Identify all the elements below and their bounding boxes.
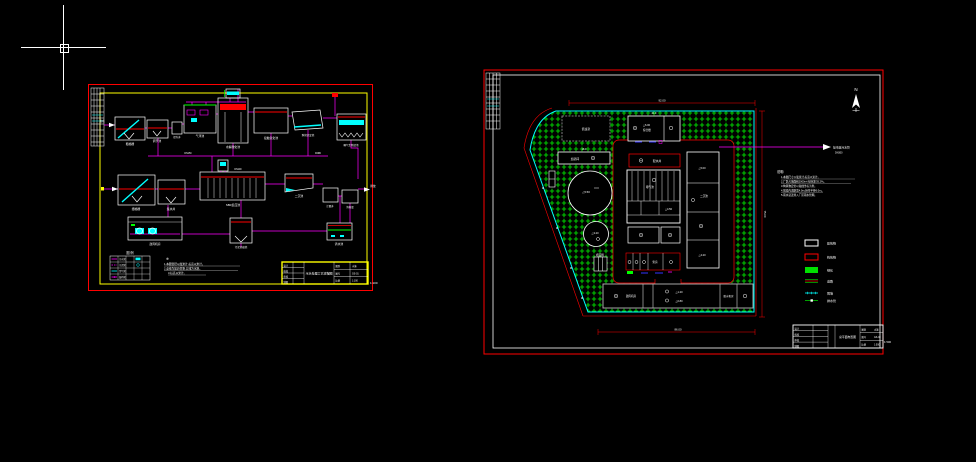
- svg-text:提升井: 提升井: [173, 135, 181, 139]
- left-legend-table: 图 例 污水管 污泥管 空气管 加药管: [110, 250, 150, 280]
- svg-text:86.00: 86.00: [675, 328, 682, 332]
- sludge-thickener: [230, 218, 252, 243]
- tank-fine-screen: [118, 175, 155, 205]
- clarifier-circle-small: △3.20: [584, 222, 609, 247]
- legend-swatch-drain: [805, 299, 818, 301]
- left-revision-strip: [91, 88, 104, 146]
- tank-aerated-filter: [337, 114, 366, 140]
- legend-swatch-wall: [805, 292, 818, 294]
- svg-text:空气管: 空气管: [119, 269, 126, 273]
- svg-text:脱水机房: 脱水机房: [723, 294, 734, 298]
- svg-text:泵房: 泵房: [652, 260, 658, 264]
- svg-text:水施: 水施: [352, 264, 357, 268]
- bottom-structures: [128, 217, 352, 243]
- svg-text:1.本图管径以毫米计,标高以米计。: 1.本图管径以毫米计,标高以米计。: [164, 262, 205, 266]
- svg-text:排水管: 排水管: [827, 298, 836, 303]
- notes-title: 说明:: [777, 169, 784, 174]
- svg-text:水施: 水施: [874, 327, 879, 331]
- svg-text:比例: 比例: [336, 279, 341, 283]
- svg-text:污泥浓缩池: 污泥浓缩池: [235, 245, 248, 249]
- svg-text:92.00: 92.00: [659, 99, 666, 103]
- svg-text:DN80: DN80: [315, 153, 322, 155]
- svg-text:△4.50: △4.50: [665, 207, 673, 211]
- svg-text:粗格栅: 粗格栅: [126, 142, 135, 146]
- left-notes: ※ 1.本图管径以毫米计,标高以米计。 2.虚线为加药管路,实线为水路。 3.标…: [164, 257, 240, 275]
- svg-text:细格栅: 细格栅: [132, 207, 141, 211]
- svg-text:围墙: 围墙: [827, 291, 833, 296]
- svg-text:GS-01: GS-01: [352, 273, 359, 275]
- svg-text:4.围墙内道路宽4.0m,转弯半径6.0m。: 4.围墙内道路宽4.0m,转弯半径6.0m。: [781, 189, 824, 193]
- svg-text:加药管: 加药管: [119, 275, 126, 279]
- svg-text:75.00: 75.00: [763, 211, 767, 218]
- svg-text:图号: 图号: [862, 335, 867, 339]
- svg-text:鼓风机房: 鼓风机房: [626, 294, 637, 298]
- inflow-marker: [101, 187, 104, 191]
- tank-coarse-screen: [115, 117, 145, 140]
- svg-text:制图: 制图: [795, 344, 800, 348]
- north-arrow: N: [852, 87, 860, 112]
- svg-text:曝气池: 曝气池: [646, 185, 654, 189]
- svg-text:综合楼: 综合楼: [643, 128, 651, 132]
- clarifier-circle-large: △5.50: [568, 171, 612, 215]
- svg-text:消毒渠: 消毒渠: [346, 205, 354, 209]
- svg-text:1:100: 1:100: [352, 281, 358, 283]
- svg-text:道路: 道路: [827, 279, 833, 284]
- svg-text:△5.00: △5.00: [698, 166, 706, 170]
- svg-text:△3.20: △3.20: [591, 231, 599, 235]
- svg-text:制图: 制图: [284, 280, 289, 284]
- aeration-tank-block: 曝气池 △4.50: [627, 170, 680, 223]
- note-symbol: ※: [166, 257, 169, 261]
- legend-swatch-building: [805, 240, 818, 246]
- right-notes: 说明: 1.本图尺寸以毫米计,标高以米计。 2.厂区占地面积2000m²,绿化率…: [777, 169, 855, 197]
- left-title-block: 设计 校核 审核 制图 污水处理工艺流程图 图别 水施 图号 GS-01 比例 …: [282, 262, 378, 285]
- svg-text:曝气生物滤池: 曝气生物滤池: [343, 143, 359, 147]
- svg-text:DN300: DN300: [835, 152, 843, 155]
- left-drawing-title: 污水处理工艺流程图: [305, 271, 332, 276]
- lower-cells: [628, 227, 680, 243]
- tank-equalization: [147, 120, 168, 138]
- svg-text:斜管沉淀池: 斜管沉淀池: [302, 133, 315, 137]
- tanks-row-2: [101, 160, 358, 205]
- tank-secondary-clarifier: [285, 174, 313, 192]
- svg-text:DN150: DN150: [184, 153, 192, 155]
- flow-in-label: 进水: [99, 119, 105, 123]
- svg-text:比例: 比例: [862, 343, 867, 347]
- dosing-stack-cap: [332, 93, 338, 97]
- left-edge-text: 1:100: [370, 281, 378, 285]
- right-legend: 建筑物 构筑物 绿化 道路 围墙 排水管: [805, 240, 836, 303]
- svg-text:二沉池: 二沉池: [700, 194, 708, 198]
- tank-disinfection: [342, 190, 358, 203]
- svg-text:污水管: 污水管: [119, 257, 126, 261]
- pipe-network: [104, 89, 364, 247]
- tank-lamella-clarifier: [292, 110, 323, 130]
- flow-arrows: [109, 123, 370, 192]
- dosing-building: 加药间: [558, 152, 610, 164]
- right-tank-column: △5.00 二沉池 △4.20: [687, 152, 719, 268]
- svg-text:2.厂区占地面积2000m²,绿化率35.2%。: 2.厂区占地面积2000m²,绿化率35.2%。: [781, 180, 826, 184]
- flow-out-label: 排放: [370, 184, 376, 188]
- svg-text:GS-02: GS-02: [874, 337, 881, 339]
- svg-text:校核: 校核: [284, 269, 289, 273]
- tank-collection-well: [158, 180, 185, 204]
- left-legend-title: 图 例: [126, 250, 133, 255]
- svg-text:计量井: 计量井: [326, 204, 334, 208]
- svg-text:21.0: 21.0: [652, 112, 657, 115]
- svg-text:构筑物: 构筑物: [827, 255, 836, 260]
- tank-hydrolysis: [218, 89, 248, 143]
- svg-text:DN100: DN100: [234, 169, 242, 171]
- svg-text:△5.50: △5.50: [582, 190, 590, 194]
- svg-text:1.本图尺寸以毫米计,标高以米计。: 1.本图尺寸以毫米计,标高以米计。: [781, 175, 820, 179]
- tank-contact-oxidation: [254, 108, 288, 133]
- svg-text:值班室: 值班室: [582, 127, 591, 131]
- svg-text:△4.20: △4.20: [698, 253, 706, 257]
- svg-text:建筑物: 建筑物: [827, 241, 836, 246]
- svg-text:5.雨水就近排入厂区雨水管网。: 5.雨水就近排入厂区雨水管网。: [781, 193, 817, 197]
- tank-sbr: [200, 160, 265, 200]
- svg-text:△6.00: △6.00: [643, 123, 651, 127]
- svg-text:N: N: [854, 87, 857, 92]
- legend-swatch-road: [805, 280, 818, 283]
- svg-text:气浮池: 气浮池: [196, 134, 205, 138]
- tank-metering-well: [323, 188, 338, 202]
- svg-text:图别: 图别: [336, 264, 341, 268]
- svg-text:集水井: 集水井: [167, 207, 176, 211]
- svg-text:鼓风机房: 鼓风机房: [149, 242, 160, 246]
- svg-text:调节池: 调节池: [153, 139, 162, 143]
- svg-text:设计: 设计: [795, 327, 800, 331]
- tanks-row-1: [115, 89, 366, 143]
- svg-text:图别: 图别: [862, 327, 867, 331]
- svg-text:2.虚线为加药管路,实线为水路。: 2.虚线为加药管路,实线为水路。: [164, 267, 202, 271]
- right-edge-text: 1:500: [884, 340, 891, 344]
- svg-text:设计: 设计: [284, 263, 289, 267]
- svg-text:接触氧化池: 接触氧化池: [264, 136, 278, 140]
- bottom-buildings-row: 鼓风机房 △1.20 △0.80 脱水机房: [603, 284, 753, 308]
- svg-text:水解酸化池: 水解酸化池: [226, 145, 240, 149]
- svg-text:18.0: 18.0: [582, 148, 587, 151]
- svg-text:晒泥场: 晒泥场: [596, 253, 604, 257]
- svg-text:3.标高以米计。: 3.标高以米计。: [168, 271, 186, 275]
- svg-text:二沉池: 二沉池: [295, 194, 304, 198]
- svg-text:绿化: 绿化: [827, 268, 833, 273]
- clean-water-tank: [327, 223, 352, 240]
- svg-text:3.构筑物定位以轴线坐标为准。: 3.构筑物定位以轴线坐标为准。: [781, 184, 817, 188]
- outfall-arrow: [823, 144, 831, 150]
- svg-text:△0.80: △0.80: [675, 299, 683, 303]
- svg-text:清水池: 清水池: [335, 242, 344, 246]
- legend-swatch-structure: [805, 254, 818, 260]
- svg-text:校核: 校核: [795, 332, 800, 336]
- tank-lift-well: [172, 122, 182, 134]
- guard-house: 值班室: [562, 116, 610, 141]
- right-drawing-title: 总平面布置图: [839, 335, 856, 339]
- svg-text:配水井: 配水井: [653, 159, 662, 163]
- site-plan-drawing[interactable]: N 92.00 86.00 75.00 21.0 18.0 13.0 30.0 …: [483, 68, 885, 358]
- blower-house: [128, 217, 182, 240]
- svg-text:1:500: 1:500: [874, 345, 880, 347]
- svg-text:审核: 审核: [284, 274, 289, 278]
- left-borders: [89, 85, 373, 291]
- svg-text:△1.20: △1.20: [675, 290, 683, 294]
- svg-text:污泥管: 污泥管: [119, 263, 126, 267]
- distribution-well: 配水井: [629, 154, 680, 167]
- svg-text:加药间: 加药间: [571, 157, 580, 161]
- right-revision-strip: [486, 73, 500, 129]
- crosshair-pickbox: [60, 44, 69, 53]
- svg-text:接市政污水管: 接市政污水管: [833, 146, 850, 150]
- cad-viewport[interactable]: { "colors": { "background": "#000000", "…: [0, 0, 976, 462]
- right-title-block: 设计 校核 审核 制图 总平面布置图 图别 水施 图号 GS-02 比例 1:5…: [793, 325, 891, 348]
- legend-swatch-greenery: [805, 267, 818, 273]
- tank-flotation: [184, 105, 216, 133]
- process-flow-drawing[interactable]: 进水 排放 粗格栅 调节池 提升井 气浮池 水解酸化池 接触氧化池 斜管沉淀池 …: [88, 84, 374, 292]
- svg-text:图号: 图号: [336, 271, 341, 275]
- svg-text:SBR反应池: SBR反应池: [226, 203, 240, 207]
- office-building: △6.00 综合楼: [628, 116, 680, 144]
- svg-text:审核: 审核: [795, 338, 800, 342]
